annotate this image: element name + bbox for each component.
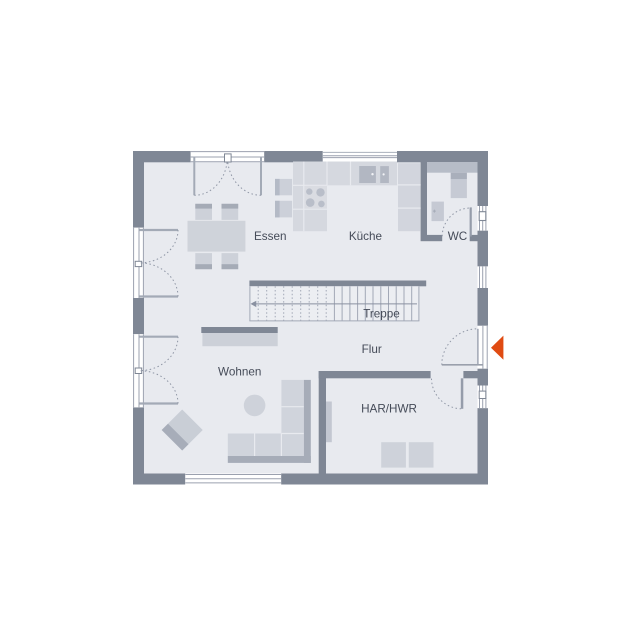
svg-text:Flur: Flur bbox=[362, 343, 382, 356]
svg-text:HAR/HWR: HAR/HWR bbox=[361, 403, 417, 416]
svg-text:Küche: Küche bbox=[349, 230, 382, 243]
svg-text:Essen: Essen bbox=[254, 230, 286, 243]
svg-text:Wohnen: Wohnen bbox=[218, 366, 261, 379]
svg-text:WC: WC bbox=[448, 230, 467, 243]
svg-text:Treppe: Treppe bbox=[363, 308, 400, 321]
